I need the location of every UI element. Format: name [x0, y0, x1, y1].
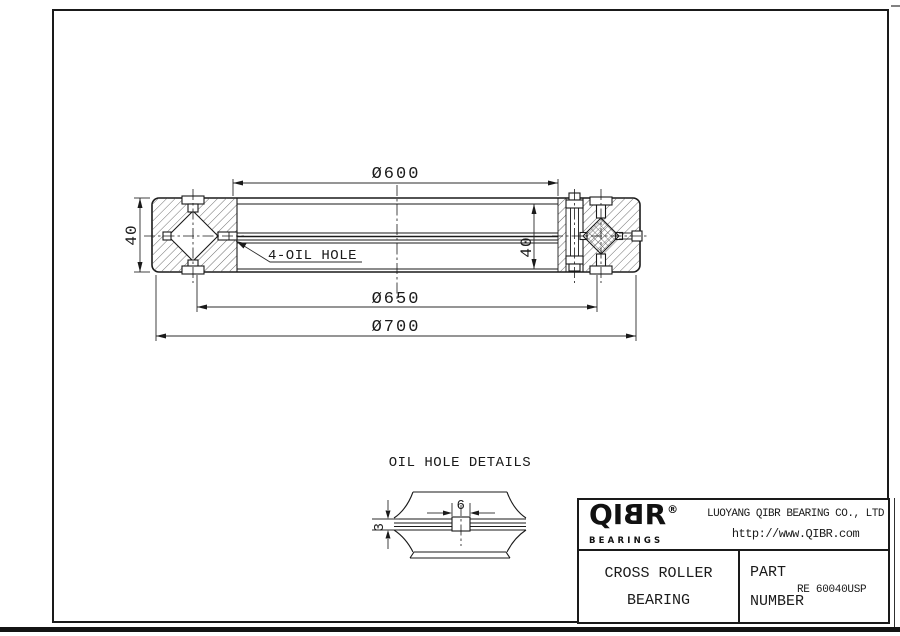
dim-text-3: 3 — [372, 523, 388, 532]
dim-mount-circle: Ø650 — [197, 275, 597, 312]
logo-text-b-mirrored: B — [623, 503, 644, 527]
dim-text-6: 6 — [457, 498, 466, 514]
company-logo: QIBR® BEARINGS — [579, 500, 705, 549]
part-number-label: PART NUMBER — [750, 558, 804, 616]
product-name: CROSS ROLLER BEARING — [579, 551, 740, 622]
title-block: QIBR® BEARINGS LUOYANG QIBR BEARING CO.,… — [577, 498, 890, 624]
dim-height-left: 40 — [123, 198, 150, 272]
part-label-line1: PART — [750, 558, 804, 587]
oil-hole-callout: 4-OIL HOLE — [236, 241, 362, 264]
product-name-line2: BEARING — [627, 592, 690, 609]
product-name-line1: CROSS ROLLER — [604, 565, 712, 582]
dim-hole-width: 6 — [427, 498, 495, 516]
sheet-bottom-edge — [0, 627, 900, 632]
engineering-drawing-page: Ø600 40 40 Ø650 — [0, 0, 900, 636]
logo-text-r: R — [645, 498, 667, 531]
logo-tagline: BEARINGS — [589, 536, 705, 546]
company-info: LUOYANG QIBR BEARING CO., LTD http://www… — [705, 500, 888, 549]
bearing-section-view: Ø600 40 40 Ø650 — [123, 165, 648, 341]
inner-ring-sliver-hatch — [558, 198, 566, 272]
company-name: LUOYANG QIBR BEARING CO., LTD — [705, 508, 886, 520]
logo-wordmark: QIBR® — [589, 503, 705, 533]
dim-bore-diameter: Ø600 — [233, 165, 558, 196]
oil-hole-detail-view: OIL HOLE DETAILS 6 — [372, 455, 531, 558]
registered-trademark-icon: ® — [667, 503, 678, 516]
dim-text-d650: Ø650 — [372, 290, 421, 309]
part-label-line2: NUMBER — [750, 587, 804, 616]
logo-text-qi: QI — [589, 498, 623, 531]
title-block-header-row: QIBR® BEARINGS LUOYANG QIBR BEARING CO.,… — [579, 500, 888, 551]
dim-text-40-right: 40 — [518, 236, 536, 257]
title-block-part-row: CROSS ROLLER BEARING PART NUMBER RE 6004… — [579, 551, 888, 622]
dim-text-40-left: 40 — [123, 224, 141, 245]
detail-view-title: OIL HOLE DETAILS — [389, 455, 531, 471]
part-number-cell: PART NUMBER RE 60040USP — [740, 551, 888, 622]
dim-text-d700: Ø700 — [372, 318, 421, 337]
part-number-value: RE 60040USP — [797, 584, 866, 596]
dim-hole-depth: 3 — [372, 500, 399, 549]
oil-hole-callout-text: 4-OIL HOLE — [268, 248, 357, 264]
dim-height-right: 40 — [518, 204, 537, 269]
dim-text-d600: Ø600 — [372, 165, 421, 184]
company-website: http://www.QIBR.com — [705, 527, 886, 541]
